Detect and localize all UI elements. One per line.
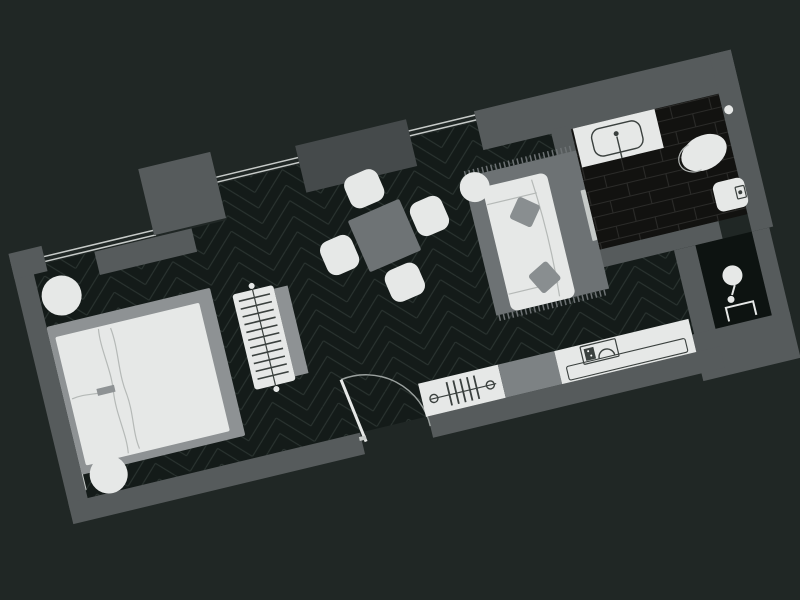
floorplan bbox=[0, 17, 800, 544]
floorplan-drawing bbox=[0, 17, 800, 544]
floorplan-canvas bbox=[0, 0, 800, 600]
exterior-pier bbox=[138, 152, 226, 235]
